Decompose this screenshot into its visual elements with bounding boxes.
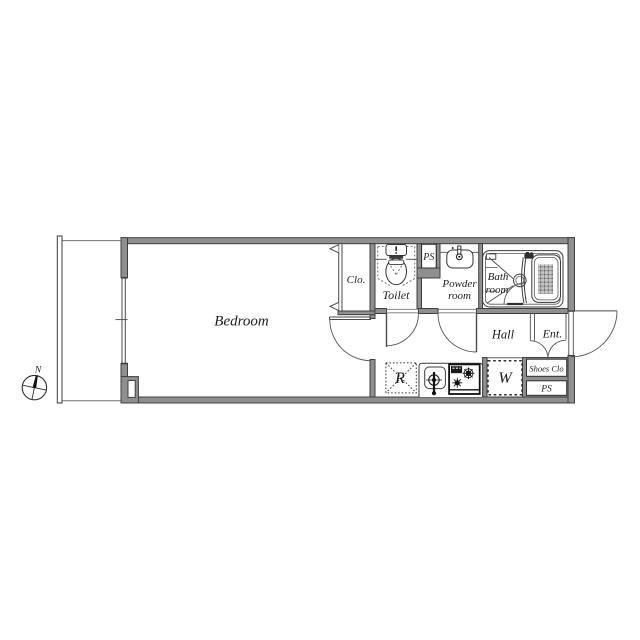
svg-text:R: R <box>394 370 405 387</box>
svg-text:PS: PS <box>540 385 552 395</box>
svg-text:Powder: Powder <box>441 278 477 290</box>
svg-text:N: N <box>34 366 42 376</box>
svg-text:room: room <box>486 284 509 296</box>
svg-text:PS: PS <box>422 252 434 263</box>
svg-text:Ent.: Ent. <box>542 326 563 340</box>
svg-text:Hall: Hall <box>491 328 515 342</box>
svg-text:Bath: Bath <box>488 271 509 283</box>
svg-text:Bedroom: Bedroom <box>214 314 269 330</box>
svg-text:Shoes Clo: Shoes Clo <box>529 364 563 374</box>
svg-text:W: W <box>498 370 513 387</box>
svg-text:Clo.: Clo. <box>347 274 366 286</box>
svg-text:room: room <box>448 290 471 302</box>
svg-text:Toilet: Toilet <box>383 288 411 302</box>
